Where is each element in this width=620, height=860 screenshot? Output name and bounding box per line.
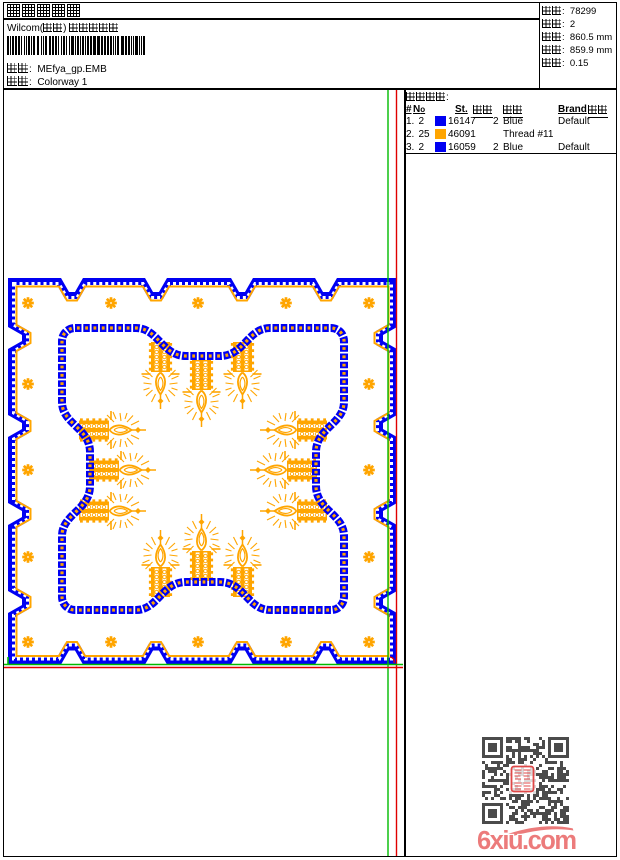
svg-text:6xiu.com: 6xiu.com bbox=[477, 827, 576, 855]
